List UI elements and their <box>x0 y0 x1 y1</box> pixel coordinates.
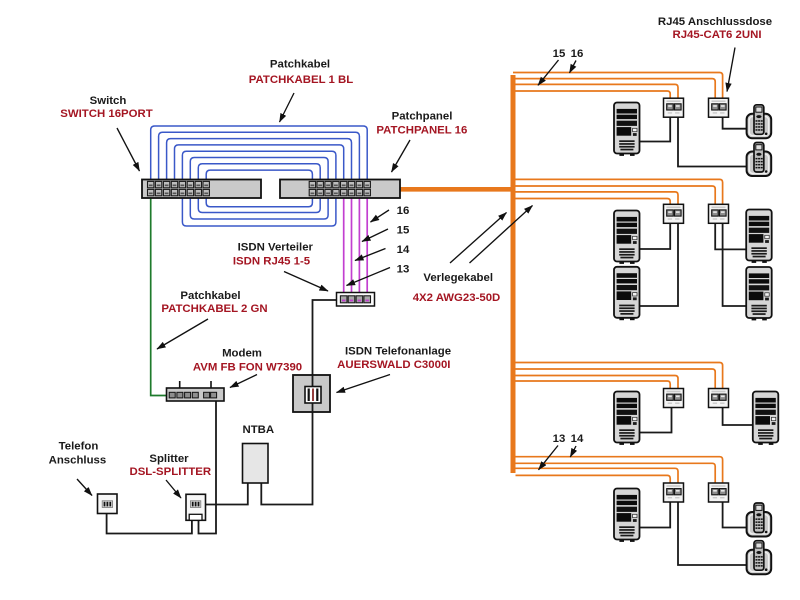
svg-text:SWITCH 16PORT: SWITCH 16PORT <box>60 108 152 120</box>
svg-text:NTBA: NTBA <box>242 424 274 436</box>
svg-text:14: 14 <box>397 244 410 256</box>
svg-text:13: 13 <box>397 264 410 276</box>
svg-text:PATCHPANEL 16: PATCHPANEL 16 <box>376 125 467 137</box>
svg-text:AVM FB FON W7390: AVM FB FON W7390 <box>193 362 302 374</box>
svg-text:PATCHKABEL 2 GN: PATCHKABEL 2 GN <box>161 303 267 315</box>
svg-text:PATCHKABEL 1 BL: PATCHKABEL 1 BL <box>249 74 353 86</box>
svg-text:AUERSWALD C3000I: AUERSWALD C3000I <box>337 359 450 371</box>
svg-text:13: 13 <box>553 433 566 445</box>
svg-text:Telefon: Telefon <box>59 440 99 452</box>
svg-text:ISDN Verteiler: ISDN Verteiler <box>238 242 314 254</box>
svg-text:16: 16 <box>571 48 584 60</box>
svg-text:Patchkabel: Patchkabel <box>270 59 330 71</box>
svg-text:ISDN Telefonanlage: ISDN Telefonanlage <box>345 346 451 358</box>
svg-text:Splitter: Splitter <box>149 453 189 465</box>
svg-text:Switch: Switch <box>90 95 127 107</box>
svg-text:RJ45 Anschlussdose: RJ45 Anschlussdose <box>658 16 772 28</box>
svg-text:Anschluss: Anschluss <box>49 454 107 466</box>
svg-text:DSL-SPLITTER: DSL-SPLITTER <box>129 466 211 478</box>
svg-text:Patchkabel: Patchkabel <box>180 290 240 302</box>
svg-text:ISDN RJ45 1-5: ISDN RJ45 1-5 <box>233 256 311 268</box>
svg-text:16: 16 <box>397 205 410 217</box>
svg-text:Modem: Modem <box>222 348 262 360</box>
svg-text:15: 15 <box>397 225 410 237</box>
svg-text:Verlegekabel: Verlegekabel <box>423 272 493 284</box>
svg-text:15: 15 <box>553 48 566 60</box>
svg-text:4X2 AWG23-50D: 4X2 AWG23-50D <box>413 292 501 304</box>
svg-text:RJ45-CAT6 2UNI: RJ45-CAT6 2UNI <box>672 29 761 41</box>
svg-text:Patchpanel: Patchpanel <box>392 111 453 123</box>
svg-text:14: 14 <box>571 433 584 445</box>
